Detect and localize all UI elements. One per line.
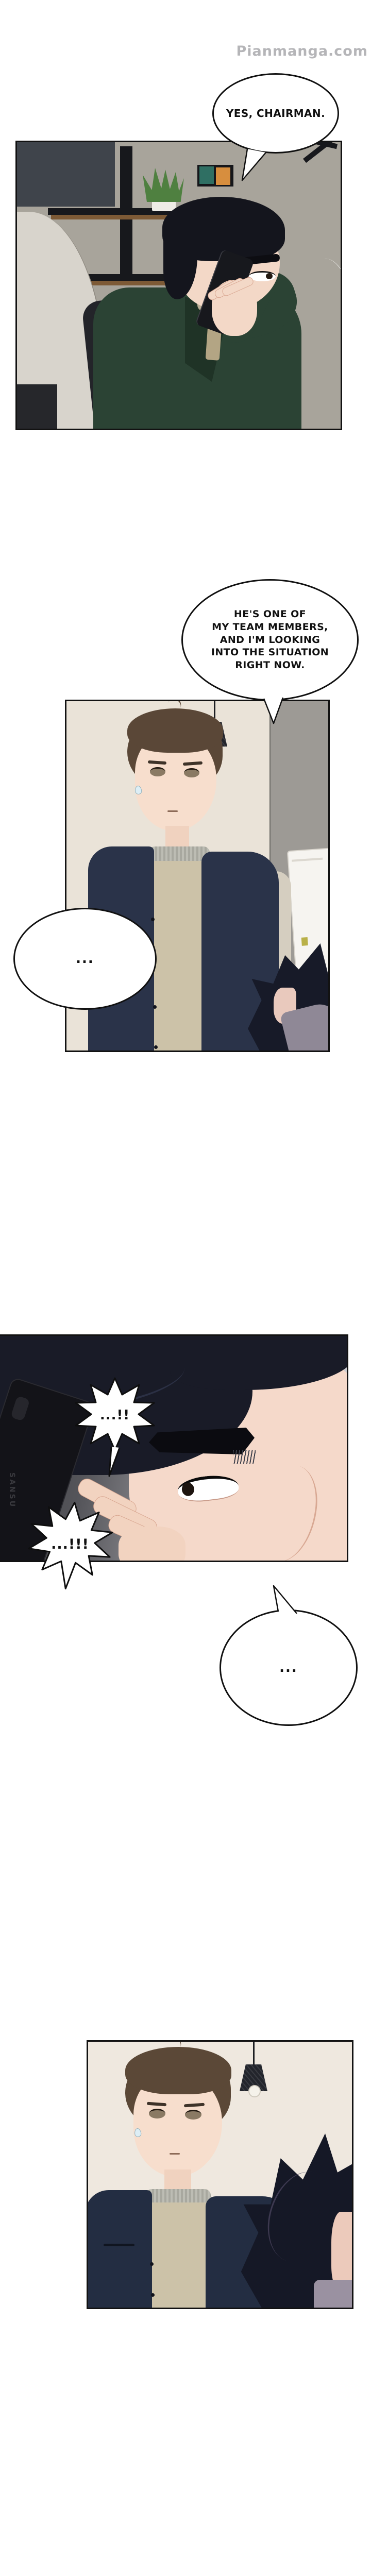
webtoon-page: Pianmanga.com bbox=[0, 0, 371, 2576]
sfx-burst-small: ...!! bbox=[66, 1370, 164, 1479]
floor-shadow bbox=[17, 384, 57, 430]
speech-text: YES, CHAIRMAN. bbox=[226, 107, 325, 120]
bubble-tail bbox=[234, 144, 276, 185]
monitor-line bbox=[292, 858, 323, 862]
button bbox=[151, 918, 155, 921]
sfx-burst-big: ...!!! bbox=[21, 1497, 120, 1594]
bubble-tail bbox=[258, 694, 289, 726]
sfx-text: ...!!! bbox=[51, 1536, 89, 1552]
button bbox=[151, 2293, 155, 2297]
speech-text: ... bbox=[279, 1660, 298, 1675]
tail-shape bbox=[274, 1586, 297, 1614]
panel-office-call bbox=[15, 141, 342, 430]
arc-line bbox=[296, 256, 342, 415]
eye-left bbox=[150, 767, 165, 776]
vest-pocket bbox=[104, 2244, 134, 2246]
button bbox=[154, 1045, 158, 1049]
tail-shape bbox=[242, 149, 266, 180]
eye-right bbox=[184, 768, 199, 777]
mouth bbox=[167, 810, 178, 812]
lamp-cord bbox=[253, 2042, 255, 2065]
plant-leaves bbox=[143, 168, 184, 202]
speech-bubble-silence: ... bbox=[13, 908, 157, 1010]
listener-shoulder bbox=[314, 2280, 353, 2309]
sfx-text: ...!! bbox=[100, 1408, 130, 1423]
listener-skin bbox=[331, 2212, 353, 2289]
button bbox=[150, 2262, 154, 2266]
phone-engraving: SANSU bbox=[8, 1472, 16, 1508]
card-teal bbox=[199, 166, 214, 184]
bangs bbox=[127, 708, 223, 753]
iris bbox=[266, 273, 273, 279]
burst-tail bbox=[109, 1447, 120, 1476]
site-watermark: Pianmanga.com bbox=[236, 43, 368, 59]
mouth bbox=[170, 2153, 180, 2155]
speech-text: ... bbox=[76, 951, 94, 967]
lamp-bulb bbox=[248, 2085, 261, 2097]
speech-bubble-chairman: YES, CHAIRMAN. bbox=[212, 73, 339, 154]
speech-text: HE'S ONE OF MY TEAM MEMBERS, AND I'M LOO… bbox=[211, 608, 329, 671]
button bbox=[153, 1005, 157, 1009]
speech-bubble-silence-2: ... bbox=[220, 1609, 358, 1726]
bubble-tail bbox=[268, 1581, 304, 1617]
window-dark bbox=[17, 142, 115, 207]
iris bbox=[181, 1482, 195, 1497]
palm bbox=[119, 1527, 185, 1562]
speech-bubble-team: HE'S ONE OF MY TEAM MEMBERS, AND I'M LOO… bbox=[181, 579, 359, 701]
brow-hatch bbox=[233, 1450, 256, 1464]
camera-module bbox=[10, 1396, 30, 1421]
sticky-note bbox=[301, 937, 308, 946]
vest-left bbox=[87, 2190, 152, 2309]
card-orange bbox=[216, 167, 230, 185]
eye-left bbox=[149, 2109, 165, 2119]
panel-confrontation bbox=[87, 2040, 353, 2309]
bangs bbox=[125, 2047, 231, 2094]
tail-shape bbox=[264, 698, 283, 723]
eye-right bbox=[185, 2110, 201, 2120]
